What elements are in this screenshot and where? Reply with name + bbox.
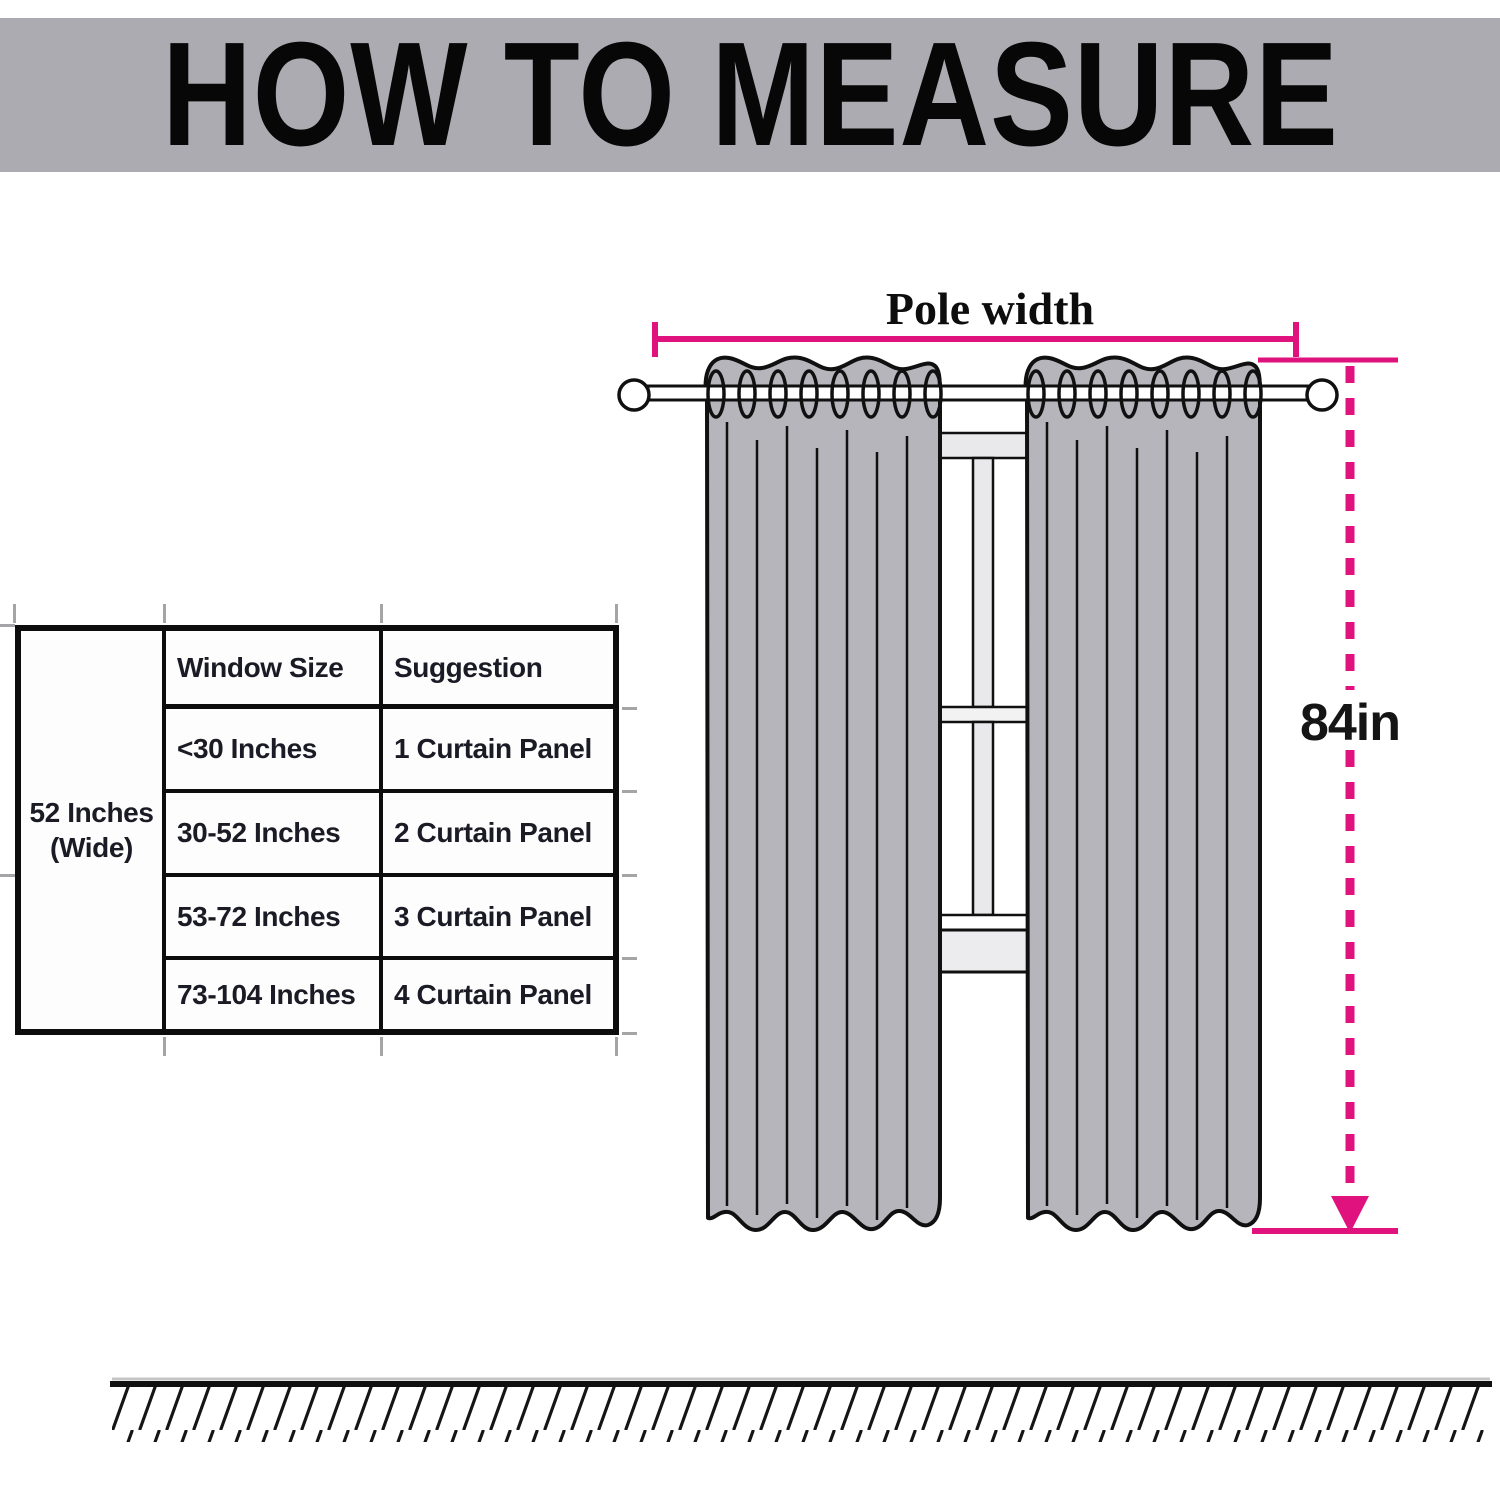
window — [928, 400, 1036, 972]
curtain-diagram: Pole width 84in — [0, 0, 1500, 1500]
height-label: 84in — [1300, 694, 1400, 752]
floor-hatch — [112, 1387, 1488, 1442]
curtain-panel-right — [1026, 357, 1260, 1230]
rod-finial-left — [619, 380, 649, 410]
down-arrow-icon — [1331, 1196, 1369, 1233]
pole-width-label: Pole width — [886, 283, 1094, 334]
rod-finial-right — [1307, 380, 1337, 410]
how-to-measure-infographic: HOW TO MEASURE 52 Inches (Wide) Window S… — [0, 0, 1500, 1500]
window-sill — [928, 930, 1036, 972]
curtain-panel-left — [706, 357, 940, 1230]
floor-line — [110, 1379, 1492, 1442]
height-dimension — [1252, 360, 1414, 1233]
